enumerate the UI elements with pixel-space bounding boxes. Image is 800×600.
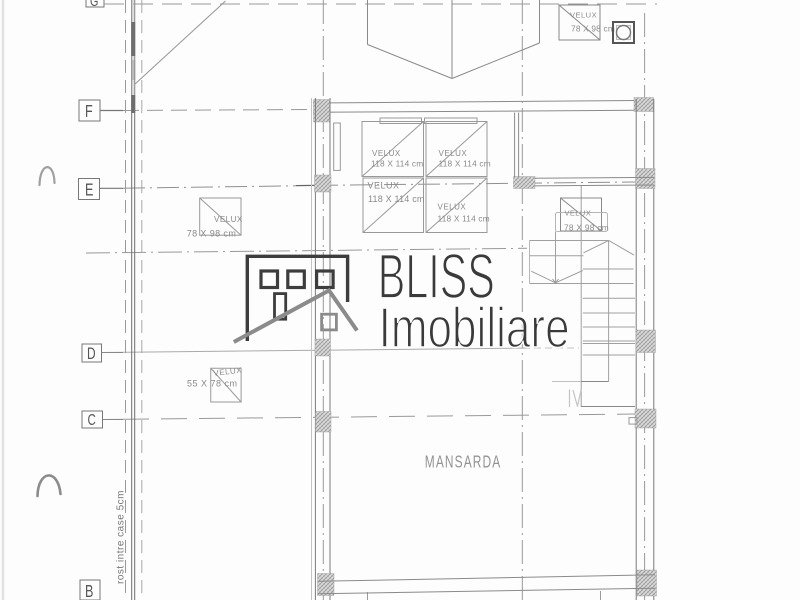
svg-text:rost intre case 5cm: rost intre case 5cm bbox=[116, 490, 127, 584]
svg-text:MANSARDA: MANSARDA bbox=[425, 454, 501, 473]
svg-text:VELUX: VELUX bbox=[372, 149, 401, 158]
svg-text:C: C bbox=[88, 410, 96, 428]
svg-text:78 X 98 cm: 78 X 98 cm bbox=[571, 24, 615, 34]
svg-text:E: E bbox=[85, 180, 93, 200]
svg-text:G: G bbox=[90, 0, 98, 9]
svg-text:Imobiliare: Imobiliare bbox=[379, 296, 570, 360]
svg-text:55 X 78 cm: 55 X 78 cm bbox=[187, 379, 238, 389]
svg-text:B: B bbox=[85, 582, 93, 600]
svg-text:VELUX: VELUX bbox=[438, 203, 467, 212]
svg-text:VELUX: VELUX bbox=[439, 149, 468, 158]
svg-text:118 X 114 cm: 118 X 114 cm bbox=[368, 194, 425, 204]
svg-text:VELUX: VELUX bbox=[368, 181, 400, 191]
svg-text:VELUX: VELUX bbox=[570, 11, 597, 20]
svg-text:VELUX: VELUX bbox=[214, 215, 243, 224]
svg-text:118 X 114 cm: 118 X 114 cm bbox=[438, 214, 490, 224]
svg-text:78 X 98 cm: 78 X 98 cm bbox=[564, 223, 609, 233]
svg-text:78 X 98 cm: 78 X 98 cm bbox=[187, 229, 237, 239]
svg-text:VELUX: VELUX bbox=[565, 209, 592, 218]
svg-text:118 X 114 cm: 118 X 114 cm bbox=[439, 159, 491, 169]
svg-text:D: D bbox=[87, 345, 96, 364]
svg-text:118 X 114 cm: 118 X 114 cm bbox=[371, 159, 423, 169]
svg-text:F: F bbox=[85, 102, 93, 122]
